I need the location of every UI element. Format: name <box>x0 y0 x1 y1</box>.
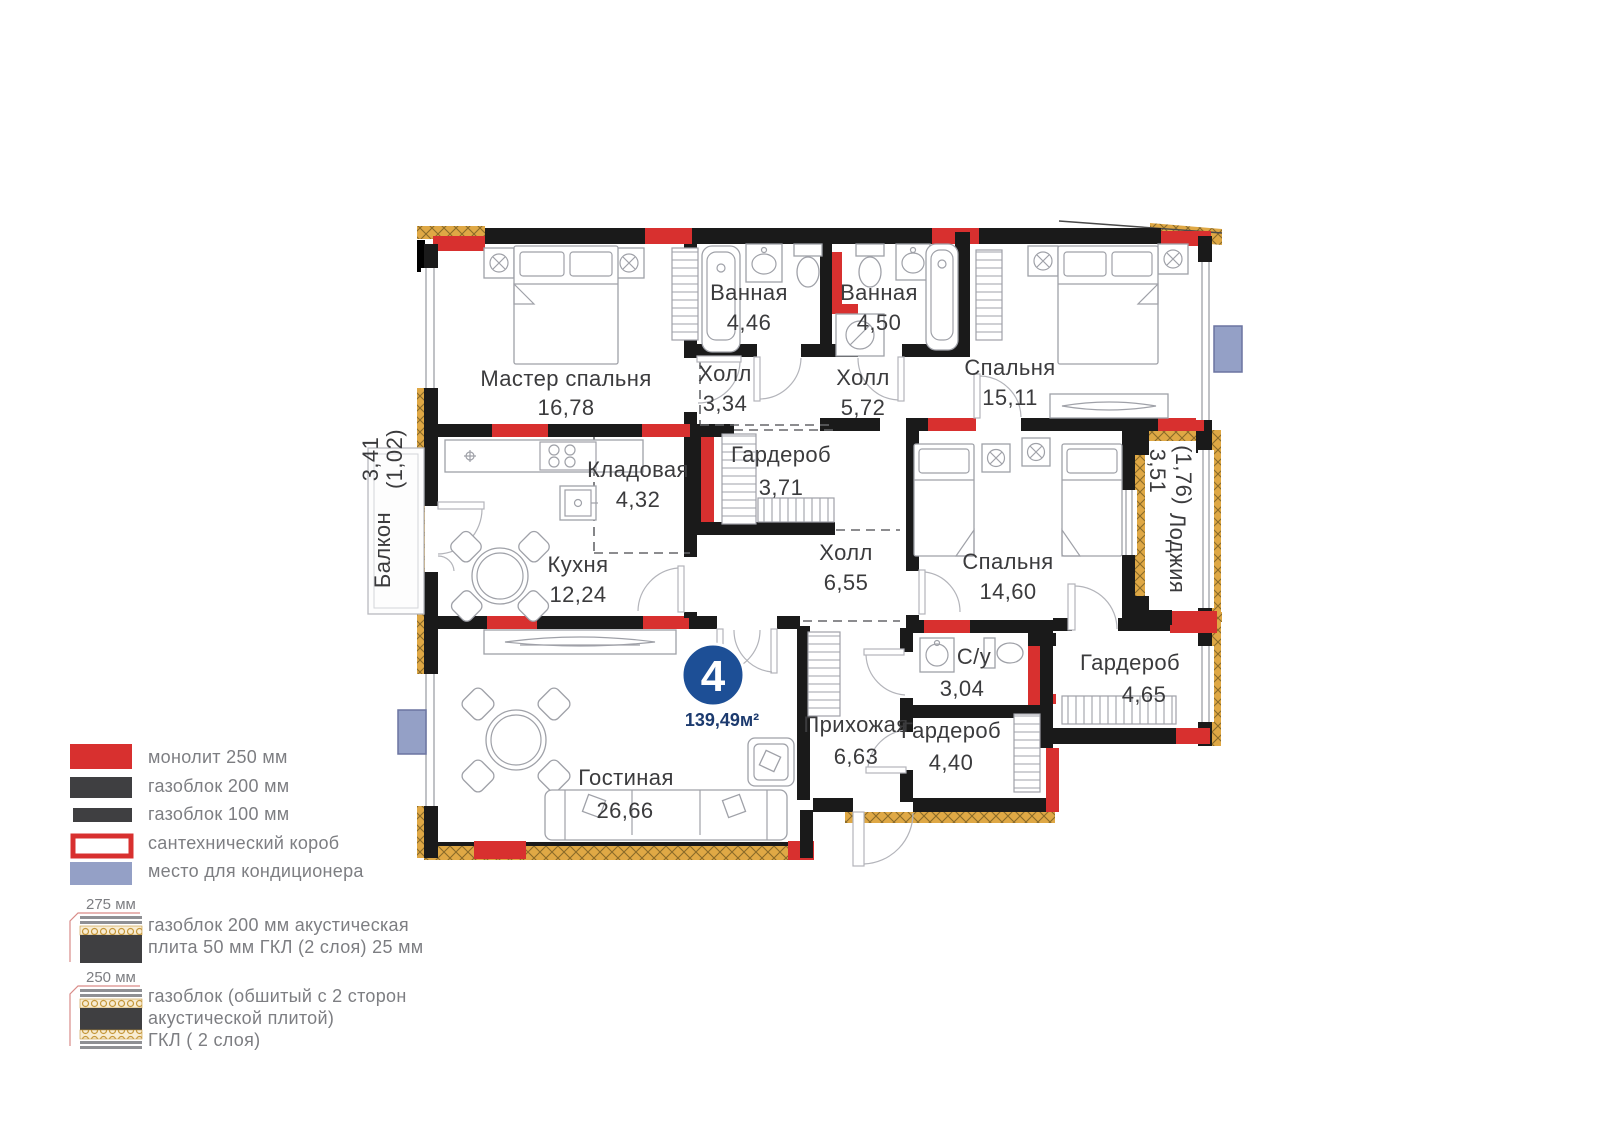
pantry-sink-icon <box>560 486 598 520</box>
wardrobe-shelving-icon <box>1014 714 1040 792</box>
room-label: Холл <box>819 540 872 565</box>
plumbing-box-swatch-icon <box>73 836 131 856</box>
room-label: Гардероб <box>1080 650 1180 675</box>
room-area: 3,04 <box>940 676 984 701</box>
ceiling-light-icon <box>484 248 514 278</box>
wall-type-desc: газоблок 200 мм акустическая <box>148 915 409 935</box>
room-kitchen: Кухня12,24 <box>548 552 609 607</box>
unit-badge: 4 139,49м² <box>682 644 759 730</box>
room-area: 4,40 <box>929 750 973 775</box>
ac-place-swatch-icon <box>70 862 132 885</box>
sofa-icon <box>545 790 787 840</box>
door-arc <box>638 566 684 612</box>
legend-item-ac-place: место для кондиционера <box>70 861 364 885</box>
wall-layers-swatch-icon <box>80 989 142 1049</box>
dresser-icon <box>1050 394 1168 418</box>
room-label: Гардероб <box>901 718 1001 743</box>
wall-thickness-label: 250 мм <box>86 969 136 986</box>
room-label: Кухня <box>548 552 609 577</box>
room-area: 14,60 <box>979 579 1036 604</box>
window <box>1196 262 1214 420</box>
legend-item-label: место для кондиционера <box>148 861 364 881</box>
room-label: Мастер спальня <box>480 366 651 391</box>
door-arc <box>754 357 801 401</box>
door-arc <box>1068 584 1117 630</box>
wardrobe-shelving-icon <box>758 498 834 522</box>
sink-icon <box>920 638 954 672</box>
room-bedroom-3: Спальня14,60 <box>962 549 1053 604</box>
ac-unit-marker <box>398 710 426 754</box>
room-hall-2: Холл5,72 <box>836 365 889 420</box>
single-bed-icon <box>1062 444 1122 556</box>
room-area: 5,72 <box>841 395 885 420</box>
wall-layers-swatch-icon <box>80 916 142 963</box>
door-arc <box>864 649 905 695</box>
room-label: Лоджия <box>1165 513 1190 593</box>
tv-console-icon <box>484 630 676 654</box>
room-wardrobe-2: Гардероб4,40 <box>901 718 1001 775</box>
door-arc <box>919 570 960 614</box>
room-label: Гардероб <box>731 442 831 467</box>
ceiling-light-icon <box>1028 246 1058 276</box>
room-area: 15,11 <box>982 385 1037 410</box>
double-bed-icon <box>514 246 618 364</box>
room-label: Спальня <box>962 549 1053 574</box>
wardrobe-shelving-icon <box>808 632 840 716</box>
room-label: Спальня <box>964 355 1055 380</box>
legend-item-gasblock-200: газоблок 200 мм <box>70 776 289 798</box>
room-label: С/у <box>957 644 991 669</box>
room-hallway: Прихожая6,63 <box>803 712 908 769</box>
furniture <box>445 244 1188 840</box>
legend-item-plumbing-box: сантехнический короб <box>73 833 339 856</box>
room-area: 12,24 <box>549 582 606 607</box>
legend-item-label: монолит 250 мм <box>148 747 288 767</box>
window <box>1198 450 1214 608</box>
room-area: 4,65 <box>1122 682 1166 707</box>
plumbing-shaft <box>701 437 714 525</box>
window <box>421 268 440 388</box>
room-hall-1: Холл3,34 <box>698 361 751 416</box>
room-area-reduced: (1,76) <box>1171 445 1196 505</box>
room-label: Гостиная <box>578 765 674 790</box>
gasblock-100-swatch-icon <box>73 808 132 822</box>
room-area: 3,51 <box>1145 449 1170 493</box>
room-pantry: Кладовая4,32 <box>587 457 689 512</box>
floor-plan-page: Мастер спальня16,78 Ванная4,46 Ванная4,5… <box>0 0 1600 1124</box>
wall-type-desc: плита 50 мм ГКЛ (2 слоя) 25 мм <box>148 937 423 957</box>
room-label: Балкон <box>370 512 395 588</box>
wall-type-desc: ГКЛ ( 2 слоя) <box>148 1030 260 1050</box>
room-label: Прихожая <box>803 712 908 737</box>
unit-number: 4 <box>701 652 726 701</box>
ac-unit-marker <box>1214 326 1242 372</box>
room-area: 16,78 <box>537 395 594 420</box>
floor-plan-canvas: Мастер спальня16,78 Ванная4,46 Ванная4,5… <box>0 0 1600 1124</box>
monolith-swatch-icon <box>70 744 132 769</box>
room-area: 26,66 <box>596 798 653 823</box>
armchair-icon <box>748 738 794 786</box>
dining-table-icon <box>460 686 573 795</box>
wall-type-desc: газоблок (обшитый с 2 сторон <box>148 986 407 1006</box>
legend-item-gasblock-100: газоблок 100 мм <box>73 804 289 824</box>
ceiling-light-icon <box>1022 438 1050 466</box>
room-area: 3,34 <box>703 391 747 416</box>
room-area: 4,32 <box>616 487 660 512</box>
wardrobe-shelving-icon <box>672 248 698 340</box>
legend-item-label: сантехнический короб <box>148 833 339 853</box>
room-area: 3,41 <box>358 437 383 481</box>
room-label: Холл <box>698 361 751 386</box>
bathtub-icon <box>926 244 958 350</box>
sink-icon <box>896 244 930 280</box>
room-area: 6,55 <box>824 570 868 595</box>
wall-type-desc: акустической плитой) <box>148 1008 334 1028</box>
toilet-icon <box>794 244 822 287</box>
room-area: 6,63 <box>834 744 878 769</box>
wall-thickness-label: 275 мм <box>86 896 136 913</box>
double-bed-icon <box>1058 246 1158 364</box>
room-label: Ванная <box>840 280 918 305</box>
room-label: Кладовая <box>587 457 689 482</box>
room-area: 4,46 <box>727 310 771 335</box>
sink-icon <box>746 244 782 282</box>
window <box>1196 646 1214 722</box>
unit-total-area: 139,49м² <box>685 710 759 730</box>
room-area-reduced: (1,02) <box>382 429 407 489</box>
legend-item-monolith: монолит 250 мм <box>70 744 288 769</box>
dining-table-icon <box>448 529 551 624</box>
legend-wall-type-275: 275 мм газоблок 200 мм акустическая плит… <box>70 896 423 963</box>
legend-item-label: газоблок 100 мм <box>148 804 289 824</box>
room-label: Ванная <box>710 280 788 305</box>
ceiling-light-icon <box>982 444 1010 472</box>
room-hall-3: Холл6,55 <box>819 540 872 595</box>
legend-wall-type-250: 250 мм газоблок (обшитый с 2 сторон акус… <box>70 969 407 1050</box>
gasblock-200-swatch-icon <box>70 777 132 798</box>
room-loggia: Лоджия 3,51 (1,76) <box>1145 445 1196 593</box>
room-area: 4,50 <box>857 310 901 335</box>
room-master-bedroom: Мастер спальня16,78 <box>480 366 651 420</box>
ceiling-light-icon <box>1158 244 1188 274</box>
legend: монолит 250 мм газоблок 200 мм газоблок … <box>70 744 423 1050</box>
room-label: Холл <box>836 365 889 390</box>
floor-plan: Мастер спальня16,78 Ванная4,46 Ванная4,5… <box>358 221 1242 866</box>
single-bed-icon <box>914 444 974 556</box>
wardrobe-shelving-icon <box>976 250 1002 340</box>
legend-item-label: газоблок 200 мм <box>148 776 289 796</box>
room-area: 3,71 <box>759 475 803 500</box>
